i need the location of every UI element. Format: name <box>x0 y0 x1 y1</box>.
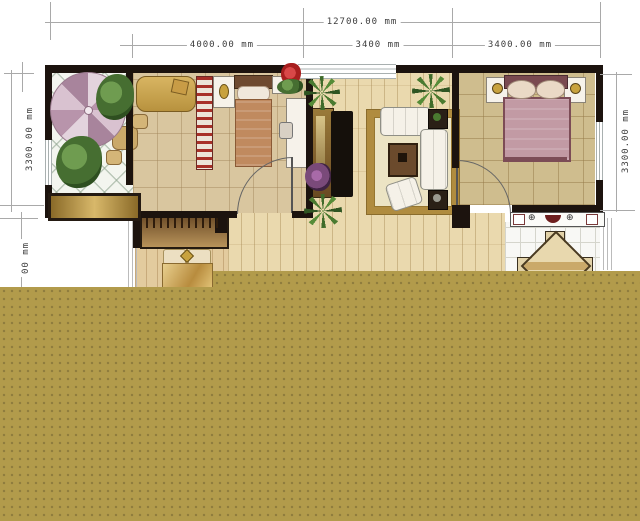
dim-label-seg-right: 3400.00 mm <box>485 40 555 50</box>
floorplan-canvas: 12700.00 mm 4000.00 mm 3400 mm 3400.00 m… <box>0 0 640 521</box>
extension-line <box>452 8 453 58</box>
patio-chair <box>106 150 122 165</box>
palm-plant <box>412 74 450 108</box>
dimension-line-right <box>616 72 617 212</box>
bed2-footboard <box>503 157 567 162</box>
window-left <box>45 140 52 185</box>
desk-chair <box>279 122 293 139</box>
striped-runner <box>196 76 213 170</box>
console-sideboard <box>48 193 141 221</box>
sofa-right <box>420 129 448 190</box>
side-table-plant <box>433 113 441 121</box>
flower-leaves <box>277 79 303 94</box>
dim-label-seg-mid: 3400 mm <box>353 40 404 50</box>
side-table-lamp <box>433 194 441 202</box>
bed2-pillow <box>507 80 536 99</box>
counter-cabinet <box>513 214 525 225</box>
bed-bottom-blanket <box>162 263 213 290</box>
parasol-center <box>84 106 93 115</box>
extension-line <box>22 62 23 92</box>
tick <box>0 218 38 219</box>
bed2-blanket <box>503 97 571 162</box>
dresser-ornament <box>219 84 229 99</box>
window-right <box>596 122 603 180</box>
potted-plant <box>96 74 134 120</box>
extension-line <box>50 2 51 40</box>
cabinet-shadow <box>331 111 353 197</box>
door-leaf-bedroom1 <box>291 157 293 213</box>
dimension-line-left <box>11 70 12 212</box>
window-top <box>298 64 396 79</box>
coffee-table-center <box>398 153 407 162</box>
wardrobe-hangers <box>146 218 219 228</box>
stove-burner-icon: ⊕ <box>528 214 536 223</box>
bed1-blanket <box>235 99 272 167</box>
tick <box>600 210 635 211</box>
nightstand-lamp <box>570 83 581 94</box>
dim-label-right: 3300.00 mm <box>621 106 631 176</box>
wall-living-bedroom2 <box>452 73 459 168</box>
extension-line <box>303 8 304 58</box>
chaise-pillow <box>171 78 190 95</box>
palm-plant <box>304 194 342 228</box>
bed2-pillow <box>536 80 565 99</box>
tick <box>4 73 34 74</box>
counter-cabinet <box>586 214 598 225</box>
wall-bedroom2-bottom <box>512 205 603 212</box>
extension-line <box>132 34 133 58</box>
nightstand-lamp <box>492 83 503 94</box>
potted-plant <box>56 136 102 188</box>
dim-label-total: 12700.00 mm <box>324 17 401 27</box>
stove-burner-icon: ⊕ <box>566 214 574 223</box>
palm-plant <box>304 76 340 110</box>
tick <box>0 205 44 206</box>
gold-overlay-bottom <box>0 287 640 521</box>
dim-label-seg-left: 4000.00 mm <box>187 40 257 50</box>
purple-flowers <box>305 163 331 191</box>
wall-kitchen-corner <box>452 205 470 228</box>
dim-label-left-lower: 00 mm <box>21 239 31 277</box>
patio-chair <box>132 114 148 129</box>
dim-label-left: 3300.00 mm <box>25 104 35 174</box>
extension-line <box>600 2 601 58</box>
tick <box>600 74 632 75</box>
